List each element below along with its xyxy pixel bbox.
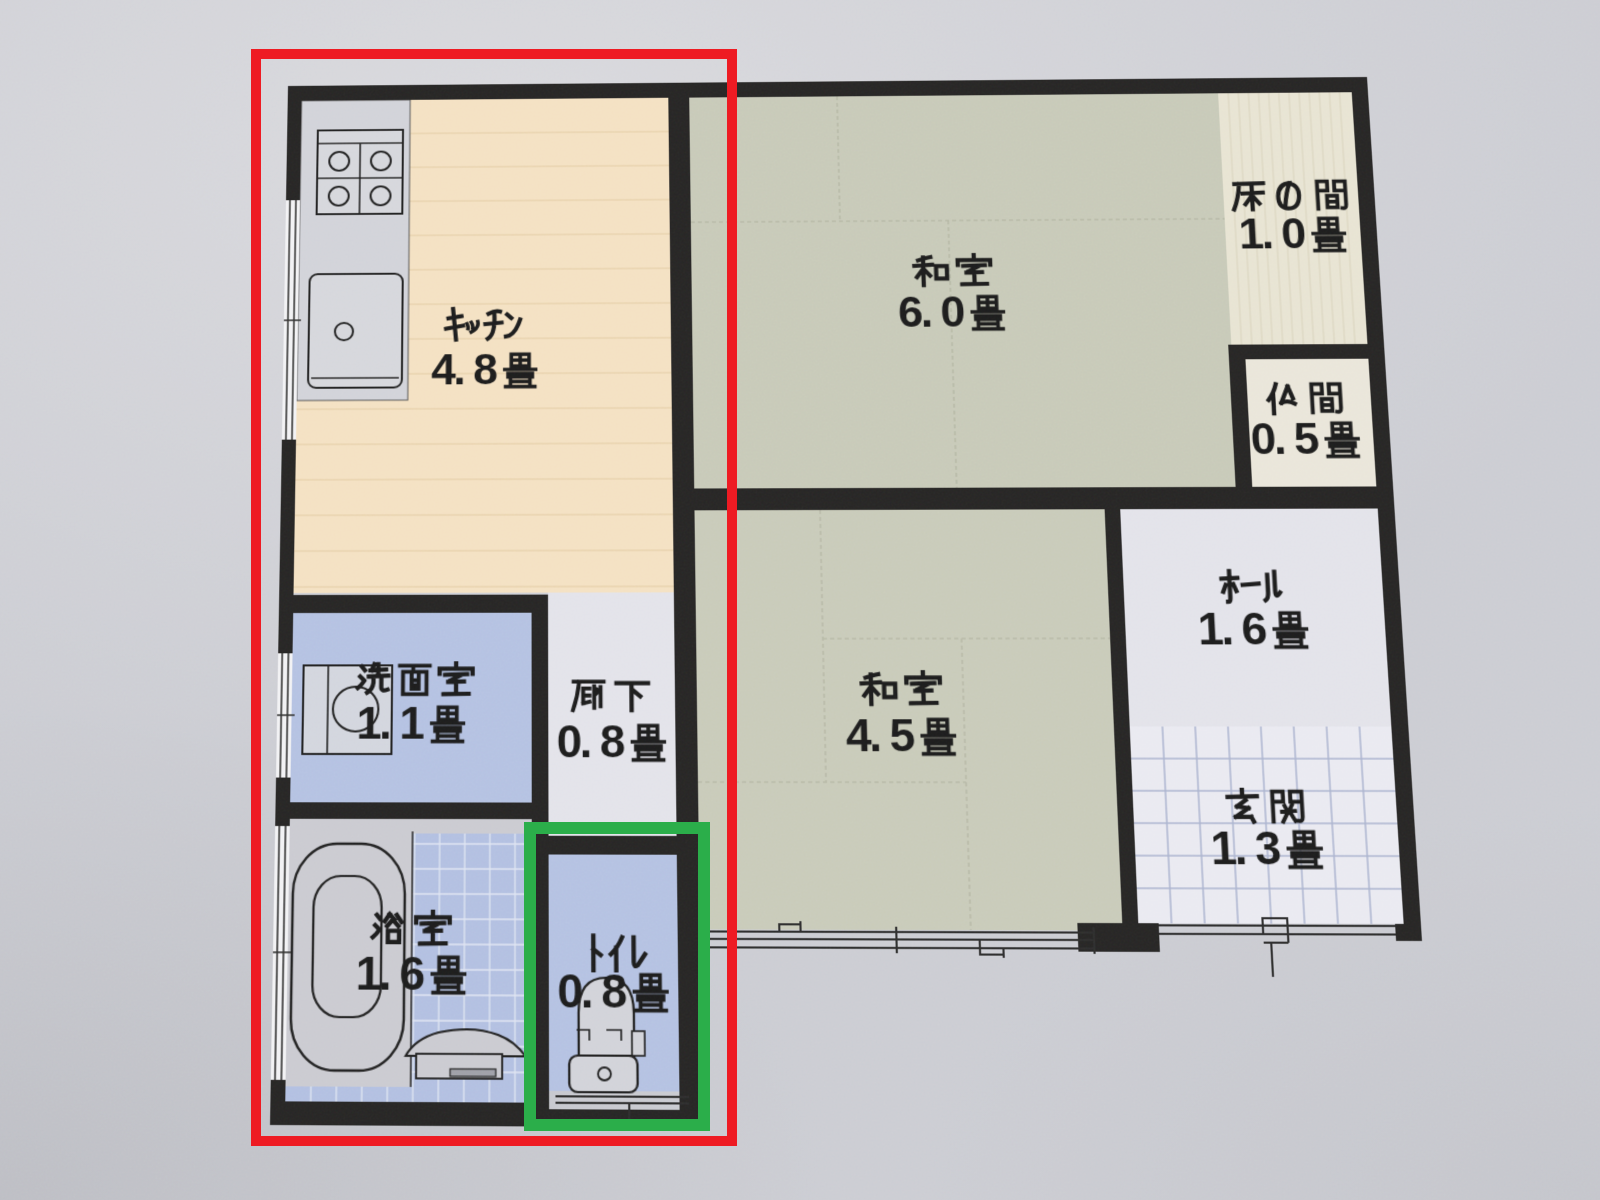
svg-text:1. 0: 1. 0 [1237,210,1307,258]
svg-text:0. 5: 0. 5 [1249,414,1320,463]
svg-text:1. 3: 1. 3 [1209,822,1282,874]
svg-text:6. 0: 6. 0 [897,288,966,336]
svg-text:1. 6: 1. 6 [1197,604,1269,654]
svg-text:4. 5: 4. 5 [845,710,916,761]
